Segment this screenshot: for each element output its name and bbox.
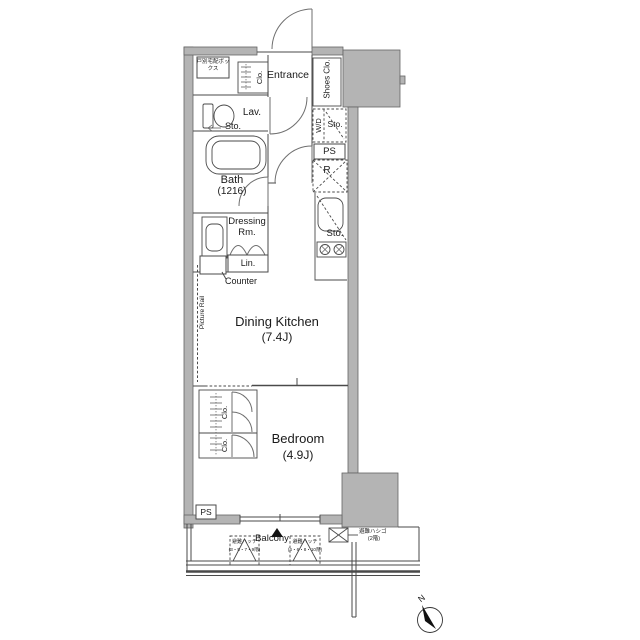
lavatory-storage-label: Sto. <box>220 121 246 131</box>
wd-storage-label: Sto. <box>324 120 346 130</box>
dressing-room-label: Dressing Rm. <box>224 217 270 239</box>
lavatory-label: Lav. <box>238 107 266 119</box>
bedroom-closet-upper-label: Clo. <box>218 398 232 426</box>
bedroom-label: Bedroom <box>260 432 336 447</box>
picture-rail-label: Picture Rail <box>196 283 209 341</box>
hatch2-name-label: 避難ハッチ <box>290 540 320 546</box>
delivery-box-label: 戸別宅配ボックス <box>196 59 230 77</box>
linen-label: Lin. <box>230 258 266 268</box>
pipe-space-bottom-label: PS <box>196 505 216 519</box>
bath-label: Bath <box>208 174 256 187</box>
bedroom-closet-lower-label: Clo. <box>218 434 232 456</box>
stove-icon <box>317 242 346 257</box>
entrance-label: Entrance <box>264 69 312 81</box>
label-text: Shoes Clo. <box>322 65 331 99</box>
bath-size-label: (1216) <box>204 186 260 198</box>
label-text: Picture Rail <box>199 295 206 328</box>
hatch1-floors-label: (3・5・7・9階) <box>227 547 262 552</box>
shoes-closet-label: Shoes Clo. <box>313 58 341 106</box>
bedroom-size-label: (4.9J) <box>260 449 336 463</box>
lavatory-door-arc <box>270 97 307 134</box>
label-text: Clo. <box>221 438 230 451</box>
washer-dryer-label: W/D <box>311 109 325 142</box>
sink-icon <box>318 198 343 231</box>
compass-icon <box>418 605 443 633</box>
kitchen-storage-label: Sto. <box>322 229 348 240</box>
label-text: Clo. <box>221 405 230 418</box>
dining-kitchen-size-label: (7.4J) <box>225 331 329 345</box>
refrigerator-label: R <box>318 165 336 177</box>
hatch1-name-label: 避難ハッチ <box>230 540 259 546</box>
escape-ladder-icon <box>329 528 358 542</box>
floor-plan: 戸別宅配ボックス Clo. Entrance Shoes Clo. Lav. S… <box>0 0 640 640</box>
hallway-door-arc <box>275 146 312 183</box>
bathtub-icon <box>206 136 266 174</box>
hatch2-floors-label: (4・6・8・10階) <box>287 547 323 552</box>
ladder-floors-label: (2階) <box>359 536 389 542</box>
dining-kitchen-label: Dining Kitchen <box>217 315 337 330</box>
label-text: W/D <box>314 118 323 133</box>
entrance-door-arc <box>272 9 312 49</box>
window-lines <box>240 514 320 523</box>
counter-label: Counter <box>218 276 264 286</box>
pipe-space-top-label: PS <box>314 144 345 159</box>
ladder-name-label: 避難ハシゴ <box>359 529 393 535</box>
